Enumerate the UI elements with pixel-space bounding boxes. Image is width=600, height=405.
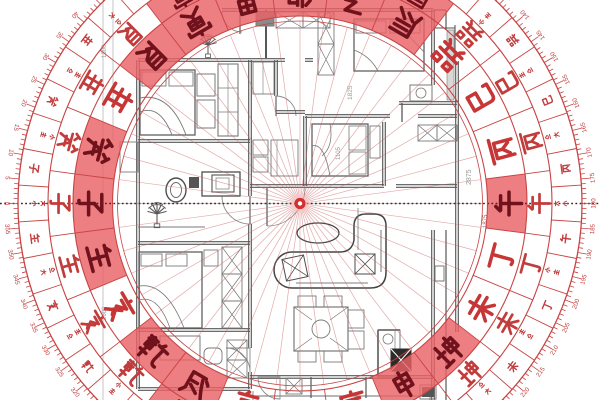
svg-text:355: 355 xyxy=(3,224,11,235)
svg-text:185: 185 xyxy=(589,223,597,234)
svg-text:180: 180 xyxy=(591,198,598,209)
svg-text:175: 175 xyxy=(589,172,597,183)
svg-text:0: 0 xyxy=(3,202,10,206)
svg-text:2875: 2875 xyxy=(466,169,473,185)
